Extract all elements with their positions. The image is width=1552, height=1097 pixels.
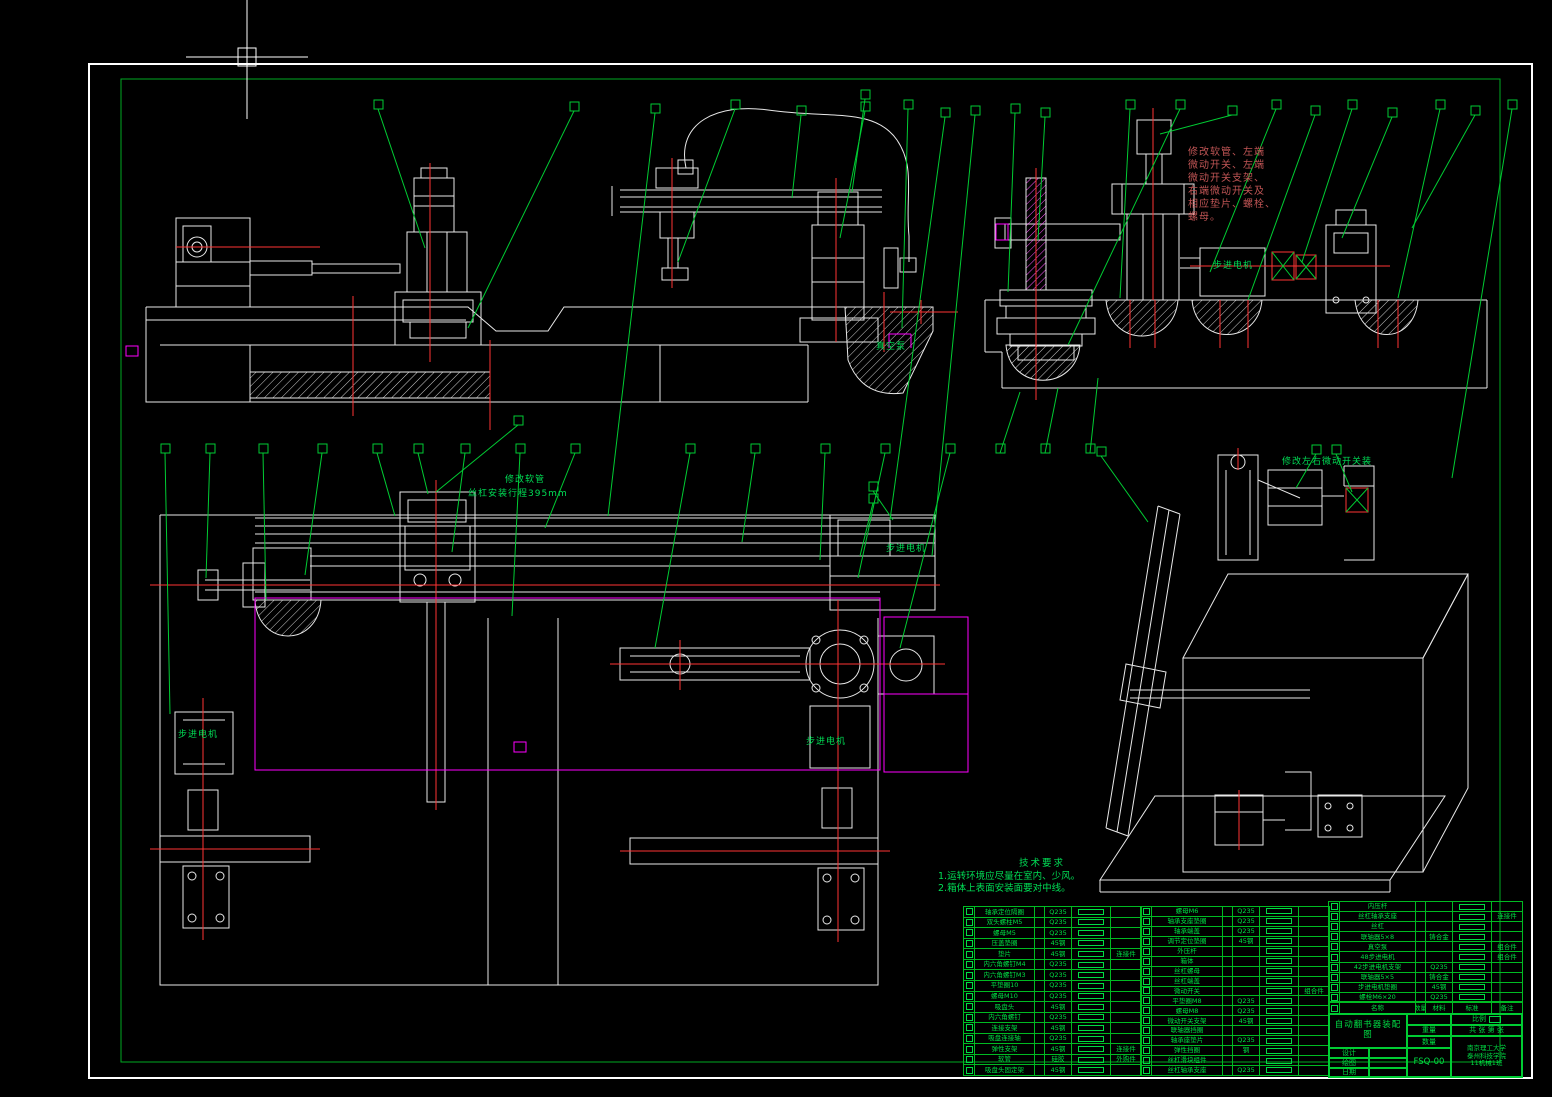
bom-row: 轴承座垫片Q235 [1141,1035,1329,1045]
item-balloon [861,90,870,99]
note-hose: 修改软管 [505,472,545,485]
item-balloon [1097,447,1106,456]
item-balloon [751,444,760,453]
leader-line [452,453,465,552]
role-design-value [1369,1048,1407,1058]
item-balloon [904,100,913,109]
view-front [146,109,933,402]
bom-row: 平垫圈M8Q235 [1141,995,1329,1005]
bom-table-right: 内压杆丝杠轴承支座连接件丝杠联轴器5×8铸合金真空泵组合件48步进电机组合件42… [1328,901,1523,1003]
leader-line [1412,115,1475,228]
item-balloon [1126,100,1135,109]
bom-row: 微动开关支架45钢 [1141,1015,1329,1025]
bom-row: 压盖垫圈45钢 [964,938,1141,949]
bom-row: 丝杠轴承支座Q235 [1141,1065,1329,1075]
item-balloon [1228,106,1237,115]
item-balloon [1332,445,1341,454]
leader-line [840,111,865,238]
note-iso-switches: 修改左右微动开关装 [1282,454,1372,467]
leader-line [742,453,755,542]
item-balloon [571,444,580,453]
bom-row: 真空泵组合件 [1329,941,1522,951]
title-block: 自动翻书器装配 图 设计 绘图 日期 重量 数量 FSQ-00 比例 共 张 第… [1328,1013,1523,1078]
item-balloon [821,444,830,453]
item-balloon [514,416,523,425]
item-balloon [461,444,470,453]
item-balloon [373,444,382,453]
bom-row: 丝杠 [1329,921,1522,931]
item-balloon [686,444,695,453]
item-balloon [941,108,950,117]
cad-model-space: { "colors": { "background": "#000000", "… [0,0,1552,1097]
drawing-number: FSQ-00 [1407,1048,1451,1077]
bom-table-left: 轴承定位隔圈Q235双头螺柱M5Q235螺母M5Q235压盖垫圈45钢垫片45钢… [963,906,1142,1076]
tech-title: 技术要求 [938,858,1146,871]
bom-row: 轴承定位隔圈Q235 [964,907,1141,917]
bom-row: 内六角螺钉M4Q235 [964,959,1141,970]
crosshair-cursor [186,0,308,119]
bom-row: 弹性挡圈钢 [1141,1045,1329,1055]
item-balloon [1348,100,1357,109]
item-balloon [1272,100,1281,109]
item-balloon [1471,106,1480,115]
bom-row: 软管硅胶外购件 [964,1054,1141,1065]
item-balloon [206,444,215,453]
leader-line [608,113,655,516]
role-date-value [1369,1068,1407,1077]
bom-row: 螺母M5Q235 [964,927,1141,938]
school-cell: 南京理工大学 泰州科技学院 11机械1班 [1451,1036,1522,1077]
scale-value-box [1489,1016,1501,1023]
bom-row: 42步进电机支架Q235 [1329,962,1522,972]
item-balloon [1388,108,1397,117]
bom-row: 吸盘头固定架45钢 [964,1064,1141,1075]
bom-row: 联轴器5×5铸合金 [1329,972,1522,982]
leader-line [1008,113,1015,292]
leader-line [305,453,322,575]
label-stepper-motor-2: 步进电机 [886,541,926,554]
bom-row: 丝杠端盖 [1141,976,1329,986]
leader-line [1342,117,1392,238]
bom-row: 箱体 [1141,956,1329,966]
item-balloon [1176,100,1185,109]
bom-row: 螺母M6Q235 [1141,907,1329,916]
item-balloon [869,494,878,503]
leader-line [678,109,735,262]
leader-line [820,453,825,560]
label-vacuum-pump: 真空泵 [876,339,906,352]
bom-row: 平垫圈10Q235 [964,980,1141,991]
leader-line [1090,378,1098,453]
leader-line [932,115,975,556]
leader-line [860,503,873,556]
role-draw: 绘图 [1329,1058,1369,1068]
label-stepper-motor-4: 步进电机 [806,734,846,747]
item-balloon [946,444,955,453]
item-balloon [318,444,327,453]
item-balloon [259,444,268,453]
bom-row: 步进电机垫圈45钢 [1329,982,1522,992]
bom-row: 垫片45钢连接件 [964,948,1141,959]
bom-row: 丝杠滑块组件 [1141,1055,1329,1065]
leader-line [1398,109,1440,298]
bom-row: 轴承端盖Q235 [1141,926,1329,936]
label-stepper-motor-1: 步进电机 [1213,258,1253,271]
leader-line [1101,456,1148,522]
bom-row: 吸盘头45钢 [964,1001,1141,1012]
leader-line [418,453,428,494]
tech-item: 2.箱体上表面安装面要对中线。 [938,883,1146,896]
leader-line [1045,388,1058,453]
item-balloon [570,102,579,111]
item-balloon [971,106,980,115]
leader-line [468,111,574,328]
bom-row: 弹性支架45钢连接件 [964,1043,1141,1054]
bom-row: 吸盘连接轴Q235 [964,1033,1141,1044]
leader-line [873,491,893,520]
bom-row: 内六角螺钉Q235 [964,1012,1141,1023]
note-screw-travel: 丝杠安装行程395mm [468,486,568,499]
bom-row: 微动开关组合件 [1141,986,1329,996]
bom-row: 双头螺柱M5Q235 [964,917,1141,928]
bom-row: 螺母M10Q235 [964,991,1141,1002]
leader-line [902,109,908,328]
item-balloon [1311,106,1320,115]
bom-row: 螺母M8Q235 [1141,1005,1329,1015]
leader-line [1452,109,1512,478]
bom-row: 调节定位垫圈45钢 [1141,936,1329,946]
role-date: 日期 [1329,1068,1369,1077]
bom-row: 联轴器挡圈 [1141,1025,1329,1035]
bom-row: 丝杠螺母 [1141,966,1329,976]
leader-line [655,453,690,648]
bom-row: 连接支架45钢 [964,1022,1141,1033]
item-balloon [1041,108,1050,117]
item-balloon [1436,100,1445,109]
tech-item: 1.运转环境应尽量在室内、少风。 [938,871,1146,884]
leader-line [165,453,170,714]
bom-row: 外压杆 [1141,946,1329,956]
item-balloon [516,444,525,453]
item-balloon [1312,445,1321,454]
qty-cell: 数量 [1407,1036,1451,1048]
bom-row: 48步进电机组合件 [1329,951,1522,961]
leader-line [377,453,395,516]
revision-note: 修改软管、左端微动开关、左端微动开关支架、右端微动开关及相应垫片、螺栓、螺母。 [1188,146,1318,224]
mark-cell [1407,1014,1451,1025]
bom-row: 内六角螺钉M3Q235 [964,969,1141,980]
bom-table-middle: 螺母M6Q235轴承支座垫圈Q235轴承端盖Q235调节定位垫圈45钢外压杆箱体… [1140,906,1330,1076]
item-balloon [414,444,423,453]
item-balloon [1011,104,1020,113]
bom-row: 内压杆 [1329,902,1522,911]
leader-line [792,115,801,198]
role-design: 设计 [1329,1048,1369,1058]
item-balloon [1508,100,1517,109]
bom-row: 丝杠轴承支座连接件 [1329,911,1522,921]
item-balloon [651,104,660,113]
label-stepper-motor-3: 步进电机 [178,727,218,740]
bom-row: 轴承支座垫圈Q235 [1141,916,1329,926]
drawing-title: 自动翻书器装配 图 [1329,1014,1407,1048]
technical-requirements: 技术要求 1.运转环境应尽量在室内、少风。 2.箱体上表面安装面要对中线。 [938,858,1146,896]
sheets-cell: 共 张 第 张 [1451,1025,1522,1036]
role-draw-value [1369,1058,1407,1068]
scale-cell: 比例 [1451,1014,1522,1025]
centerlines [150,108,1398,942]
view-isometric [1100,455,1468,892]
item-balloon [881,444,890,453]
coupler-marks [1272,252,1368,512]
item-balloon [374,100,383,109]
item-balloon [861,102,870,111]
bom-row: 联轴器5×8铸合金 [1329,931,1522,941]
weight-cell: 重量 [1407,1025,1451,1036]
item-balloon [731,100,740,109]
item-balloon [161,444,170,453]
